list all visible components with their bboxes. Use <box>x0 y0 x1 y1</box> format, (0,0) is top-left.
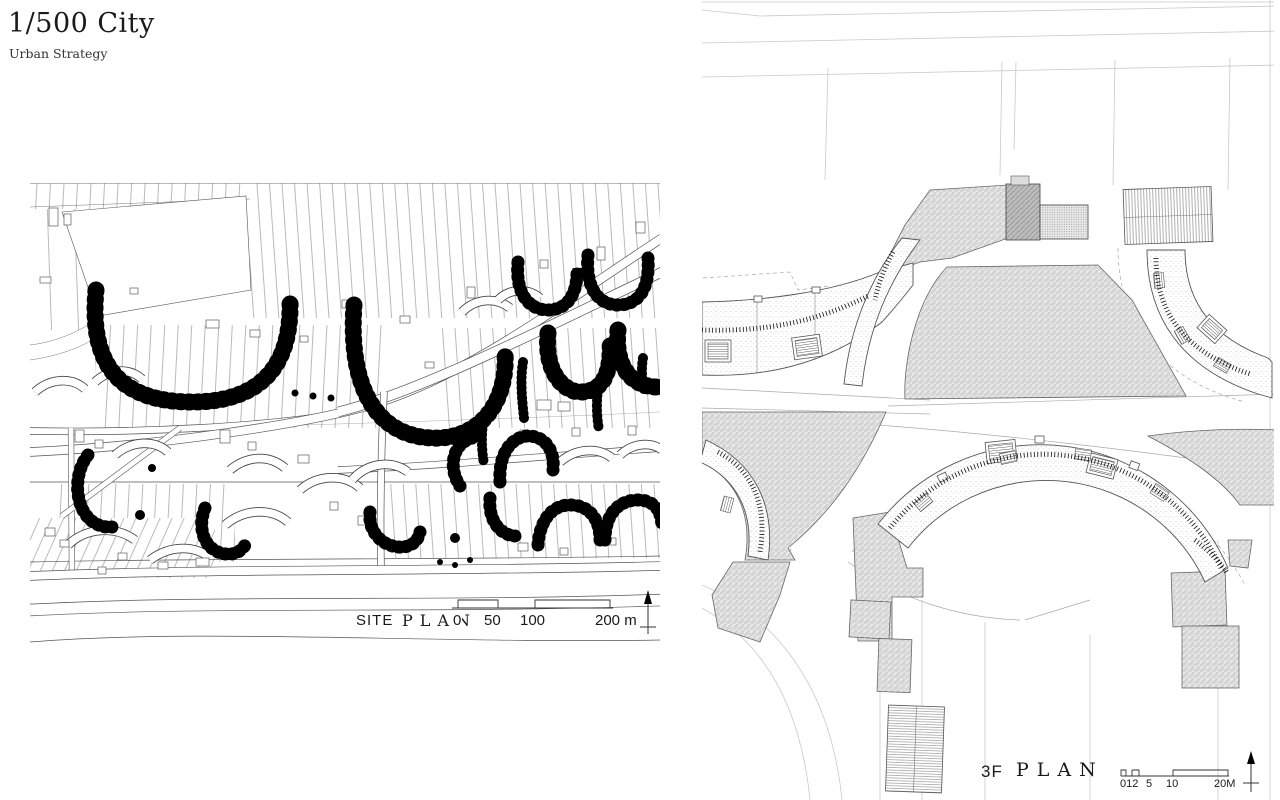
scale-tick: 200 m <box>594 612 638 629</box>
site-plan-label-site: SITE <box>354 612 395 629</box>
page-title: 1/500 City <box>8 8 155 39</box>
scale-tick: 012 <box>1120 778 1138 790</box>
site-plan-drawing <box>30 183 662 642</box>
floor-plan-label-plan: PLAN <box>1016 759 1104 781</box>
scale-tick: 5 <box>1146 778 1152 790</box>
scale-tick: 10 <box>1166 778 1178 790</box>
presentation-sheet: 1/500 City Urban Strategy SITE PLAN 0 50… <box>0 0 1280 800</box>
floor-plan-drawing <box>700 0 1280 800</box>
page-subtitle: Urban Strategy <box>9 46 108 61</box>
scale-tick: 20M <box>1214 778 1235 790</box>
scale-tick: 100 <box>519 612 546 629</box>
site-plan-label-plan: PLAN <box>400 611 479 630</box>
scale-tick: 50 <box>483 612 502 629</box>
north-arrow-icon <box>1243 751 1259 792</box>
drawing-canvas <box>0 0 1280 800</box>
floor-plan-label-level: 3F <box>981 762 1003 782</box>
floor-scale-bar <box>1121 770 1229 776</box>
scale-tick: 0 <box>452 612 462 629</box>
